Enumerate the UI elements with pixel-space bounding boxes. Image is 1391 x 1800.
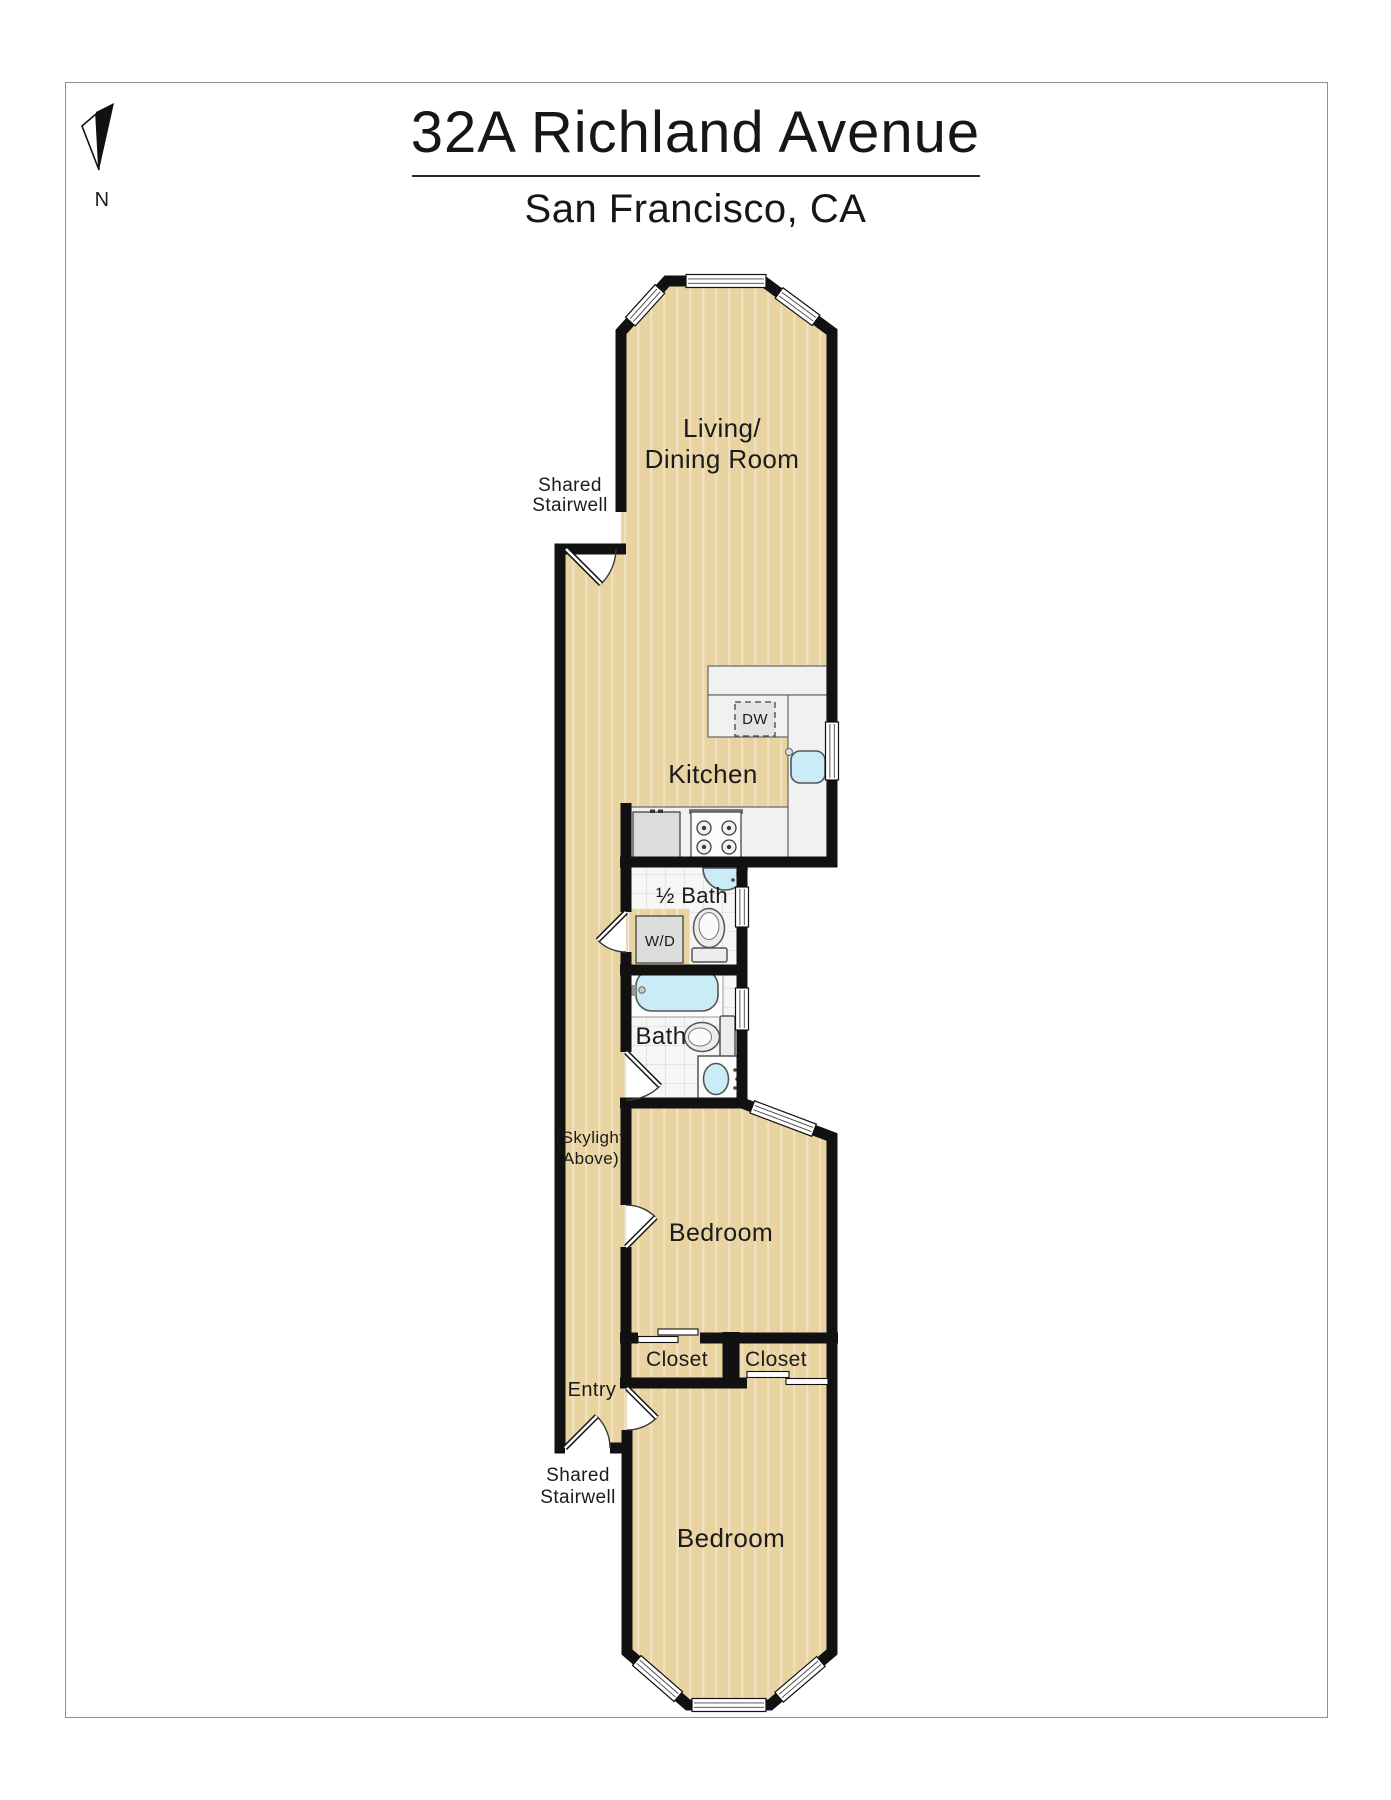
kitchen-sink [786,749,826,784]
skylight-label-2: Above) [563,1149,619,1168]
compass-north-label: N [95,189,110,211]
stairwell-bottom-label: Shared [546,1465,610,1486]
peninsula-counter [708,666,827,695]
stairwell-bottom-label-2: Stairwell [540,1487,615,1508]
stairwell-top-label: Shared [538,475,602,496]
bath-window [736,988,749,1030]
bedroom-bottom-label: Bedroom [677,1523,785,1553]
stove [689,809,743,858]
bath-vanity-sink [698,1056,741,1102]
dishwasher-label: DW [742,711,768,728]
refrigerator [633,810,680,859]
kitchen-label: Kitchen [668,759,758,789]
closet-right-label: Closet [745,1348,807,1371]
entry-label: Entry [568,1379,617,1401]
bedroom-middle-label: Bedroom [669,1219,773,1247]
skylight-label: (Skylight [556,1128,625,1147]
floor-plan-drawing: N [0,0,1391,1800]
kitchen-window [826,722,839,780]
living-room-label-2: Dining Room [645,444,800,474]
north-arrow-icon: N [82,103,114,211]
washer-dryer-label: W/D [645,933,675,950]
living-room-label: Living/ [683,413,761,443]
bath-label: Bath [636,1023,687,1050]
floor-plan-page: 32A Richland Avenue San Francisco, CA N [0,0,1391,1800]
stairwell-top-label-2: Stairwell [532,495,607,516]
half-bath-window [736,887,749,927]
half-bath-toilet [692,909,727,963]
closet-left-label: Closet [646,1348,708,1371]
half-bath-label: ½ Bath [656,883,728,908]
